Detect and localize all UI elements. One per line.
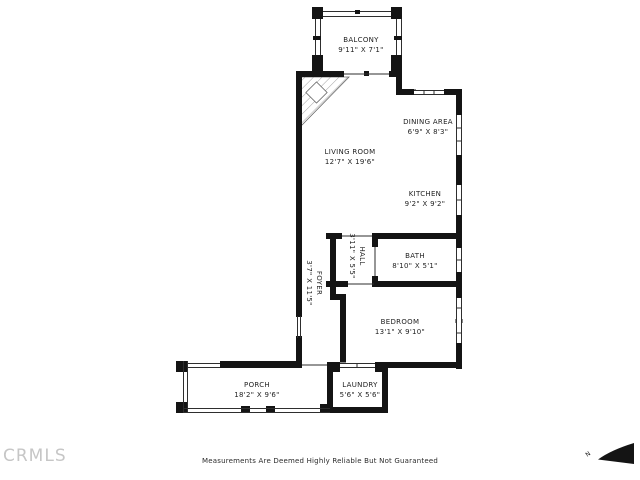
room-label-bedroom: BEDROOM 13'1" X 9'10" bbox=[375, 317, 425, 337]
foyer-name: FOYER bbox=[314, 260, 324, 305]
north-arrow-icon bbox=[584, 438, 640, 468]
dining-name: DINING AREA bbox=[403, 117, 453, 127]
kitchen-dims: 9'2" X 9'2" bbox=[405, 199, 446, 209]
balcony-name: BALCONY bbox=[338, 35, 383, 45]
balcony-dims: 9'11" X 7'1" bbox=[338, 45, 383, 55]
room-label-bath: BATH 8'10" X 5'1" bbox=[392, 251, 437, 271]
room-label-porch: PORCH 18'2" X 9'6" bbox=[234, 380, 279, 400]
laundry-dims: 5'6" X 5'6" bbox=[340, 390, 381, 400]
disclaimer-text: Measurements Are Deemed Highly Reliable … bbox=[0, 457, 640, 465]
bath-name: BATH bbox=[392, 251, 437, 261]
laundry-name: LAUNDRY bbox=[340, 380, 381, 390]
room-label-laundry: LAUNDRY 5'6" X 5'6" bbox=[340, 380, 381, 400]
walls bbox=[176, 7, 463, 413]
hall-name: HALL bbox=[357, 233, 367, 278]
hall-dims: 3'11" X 5'5" bbox=[347, 233, 357, 278]
north-arrow: N bbox=[584, 438, 640, 468]
living-name: LIVING ROOM bbox=[325, 147, 376, 157]
room-label-living: LIVING ROOM 12'7" X 19'6" bbox=[325, 147, 376, 167]
porch-dims: 18'2" X 9'6" bbox=[234, 390, 279, 400]
room-label-hall: HALL 3'11" X 5'5" bbox=[347, 233, 367, 278]
porch-name: PORCH bbox=[234, 380, 279, 390]
bath-dims: 8'10" X 5'1" bbox=[392, 261, 437, 271]
room-label-balcony: BALCONY 9'11" X 7'1" bbox=[338, 35, 383, 55]
floor-plan-drawing bbox=[0, 0, 640, 480]
room-label-kitchen: KITCHEN 9'2" X 9'2" bbox=[405, 189, 446, 209]
kitchen-name: KITCHEN bbox=[405, 189, 446, 199]
living-dims: 12'7" X 19'6" bbox=[325, 157, 376, 167]
foyer-dims: 3'7" X 11'5" bbox=[304, 260, 314, 305]
room-label-foyer: FOYER 3'7" X 11'5" bbox=[304, 260, 324, 305]
room-label-dining: DINING AREA 6'9" X 8'3" bbox=[403, 117, 453, 137]
dining-dims: 6'9" X 8'3" bbox=[403, 127, 453, 137]
floor-plan-page: BALCONY 9'11" X 7'1" DINING AREA 6'9" X … bbox=[0, 0, 640, 480]
bedroom-dims: 13'1" X 9'10" bbox=[375, 327, 425, 337]
fireplace-hatch-icon bbox=[301, 77, 349, 126]
bedroom-name: BEDROOM bbox=[375, 317, 425, 327]
